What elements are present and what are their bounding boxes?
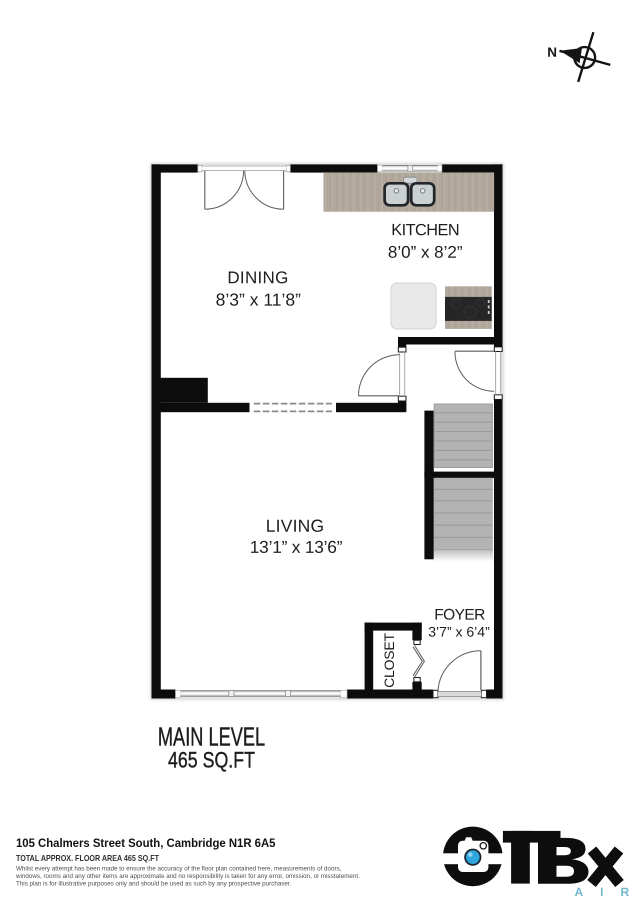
svg-text:8’0” x 8’2”: 8’0” x 8’2” bbox=[388, 243, 463, 262]
svg-text:8’3” x 11’8”: 8’3” x 11’8” bbox=[216, 290, 301, 310]
svg-text:CLOSET: CLOSET bbox=[381, 632, 397, 687]
svg-text:LIVING: LIVING bbox=[266, 516, 325, 536]
svg-text:13’1” x 13’6”: 13’1” x 13’6” bbox=[250, 537, 343, 557]
svg-text:This plan is for illustrative: This plan is for illustrative purposes o… bbox=[16, 880, 292, 887]
svg-text:KITCHEN: KITCHEN bbox=[391, 221, 459, 239]
svg-text:windows, rooms and any other i: windows, rooms and any other items are a… bbox=[15, 873, 360, 880]
svg-text:DINING: DINING bbox=[227, 268, 288, 287]
svg-text:3’7” x 6’4”: 3’7” x 6’4” bbox=[428, 624, 490, 640]
svg-text:Whilst every attempt has been: Whilst every attempt has been made to en… bbox=[16, 865, 342, 872]
svg-text:AIR: AIR bbox=[574, 885, 640, 899]
svg-text:105 Chalmers Street South, Cam: 105 Chalmers Street South, Cambridge N1R… bbox=[16, 837, 276, 850]
svg-text:MAIN LEVEL: MAIN LEVEL bbox=[158, 722, 265, 751]
svg-text:TOTAL APPROX. FLOOR AREA 465 S: TOTAL APPROX. FLOOR AREA 465 SQ.FT bbox=[16, 854, 159, 863]
svg-text:465 SQ.FT: 465 SQ.FT bbox=[168, 749, 255, 773]
svg-text:N: N bbox=[547, 45, 557, 60]
svg-text:FOYER: FOYER bbox=[434, 607, 485, 624]
